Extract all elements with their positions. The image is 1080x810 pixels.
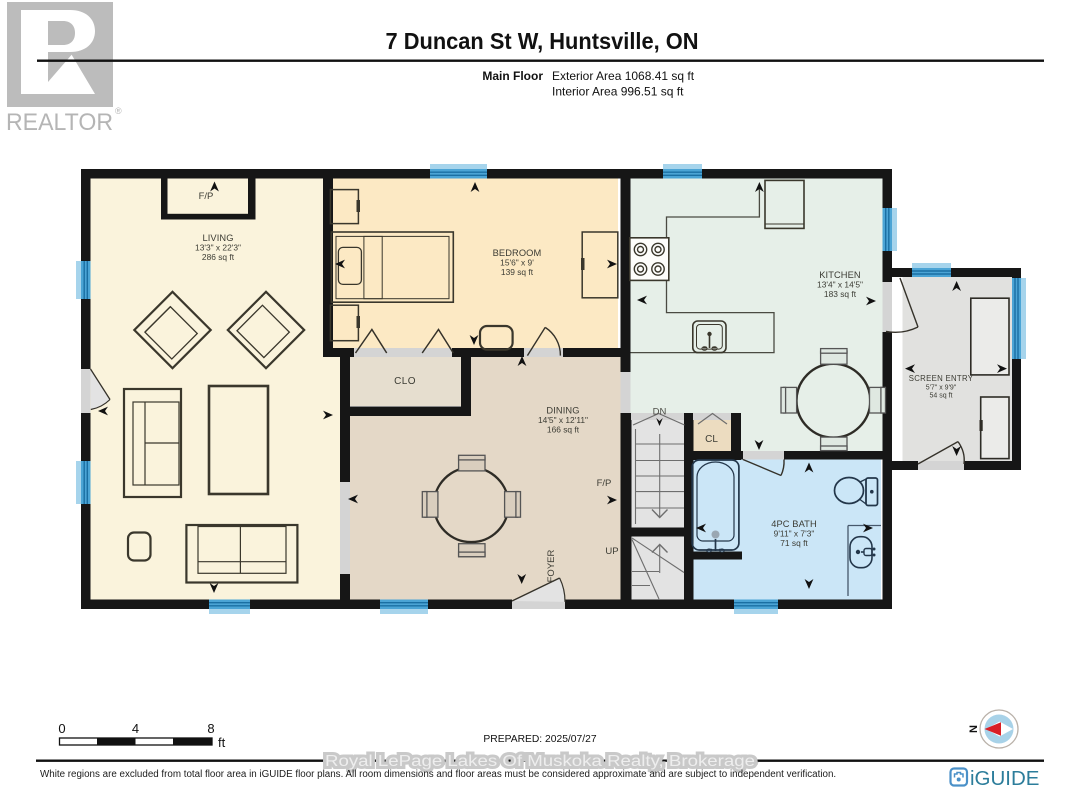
svg-text:71 sq ft: 71 sq ft xyxy=(780,538,808,548)
svg-text:13'4" x 14'5": 13'4" x 14'5" xyxy=(817,280,863,290)
svg-text:CL: CL xyxy=(705,434,718,445)
svg-text:14'5" x 12'11": 14'5" x 12'11" xyxy=(538,415,588,425)
svg-text:7 Duncan St W, Huntsville, ON: 7 Duncan St W, Huntsville, ON xyxy=(386,28,699,54)
svg-text:ft: ft xyxy=(218,735,226,750)
svg-text:FOYER: FOYER xyxy=(546,550,557,583)
svg-text:KITCHEN: KITCHEN xyxy=(819,270,861,280)
svg-text:286 sq ft: 286 sq ft xyxy=(202,252,235,262)
svg-text:BEDROOM: BEDROOM xyxy=(493,248,542,258)
svg-text:13'3" x 22'3": 13'3" x 22'3" xyxy=(195,243,241,253)
svg-text:4PC BATH: 4PC BATH xyxy=(771,519,817,529)
svg-text:139 sq ft: 139 sq ft xyxy=(501,267,534,277)
svg-text:8: 8 xyxy=(207,721,214,736)
svg-text:4: 4 xyxy=(132,721,139,736)
svg-text:LIVING: LIVING xyxy=(202,233,233,243)
svg-text:SCREEN ENTRY: SCREEN ENTRY xyxy=(909,374,974,383)
svg-text:White regions are excluded fro: White regions are excluded from total fl… xyxy=(40,769,836,780)
svg-text:Main Floor: Main Floor xyxy=(482,69,543,83)
svg-text:Interior Area 996.51 sq ft: Interior Area 996.51 sq ft xyxy=(552,85,684,99)
svg-text:DN: DN xyxy=(653,407,667,418)
svg-text:F/P: F/P xyxy=(597,478,612,489)
svg-text:166 sq ft: 166 sq ft xyxy=(547,425,580,435)
svg-text:CLO: CLO xyxy=(394,376,416,387)
svg-text:5'7" x 9'9": 5'7" x 9'9" xyxy=(926,385,957,392)
svg-text:54 sq ft: 54 sq ft xyxy=(930,393,953,400)
svg-text:UP: UP xyxy=(605,546,618,557)
svg-text:N: N xyxy=(968,725,980,733)
svg-text:15'6" x 9': 15'6" x 9' xyxy=(500,258,534,268)
svg-text:iGUIDE: iGUIDE xyxy=(970,767,1039,790)
svg-text:PREPARED: 2025/07/27: PREPARED: 2025/07/27 xyxy=(483,734,596,745)
svg-text:REALTOR: REALTOR xyxy=(6,109,113,136)
svg-text:DINING: DINING xyxy=(546,406,579,416)
svg-text:®: ® xyxy=(115,106,122,116)
svg-text:Royal LePage Lakes Of Muskoka: Royal LePage Lakes Of Muskoka Realty, Br… xyxy=(325,753,755,770)
svg-text:Exterior Area 1068.41 sq ft: Exterior Area 1068.41 sq ft xyxy=(552,69,695,83)
svg-text:0: 0 xyxy=(58,721,65,736)
svg-text:9'11" x 7'3": 9'11" x 7'3" xyxy=(774,529,815,539)
svg-text:F/P: F/P xyxy=(199,191,214,202)
svg-text:183 sq ft: 183 sq ft xyxy=(824,289,857,299)
